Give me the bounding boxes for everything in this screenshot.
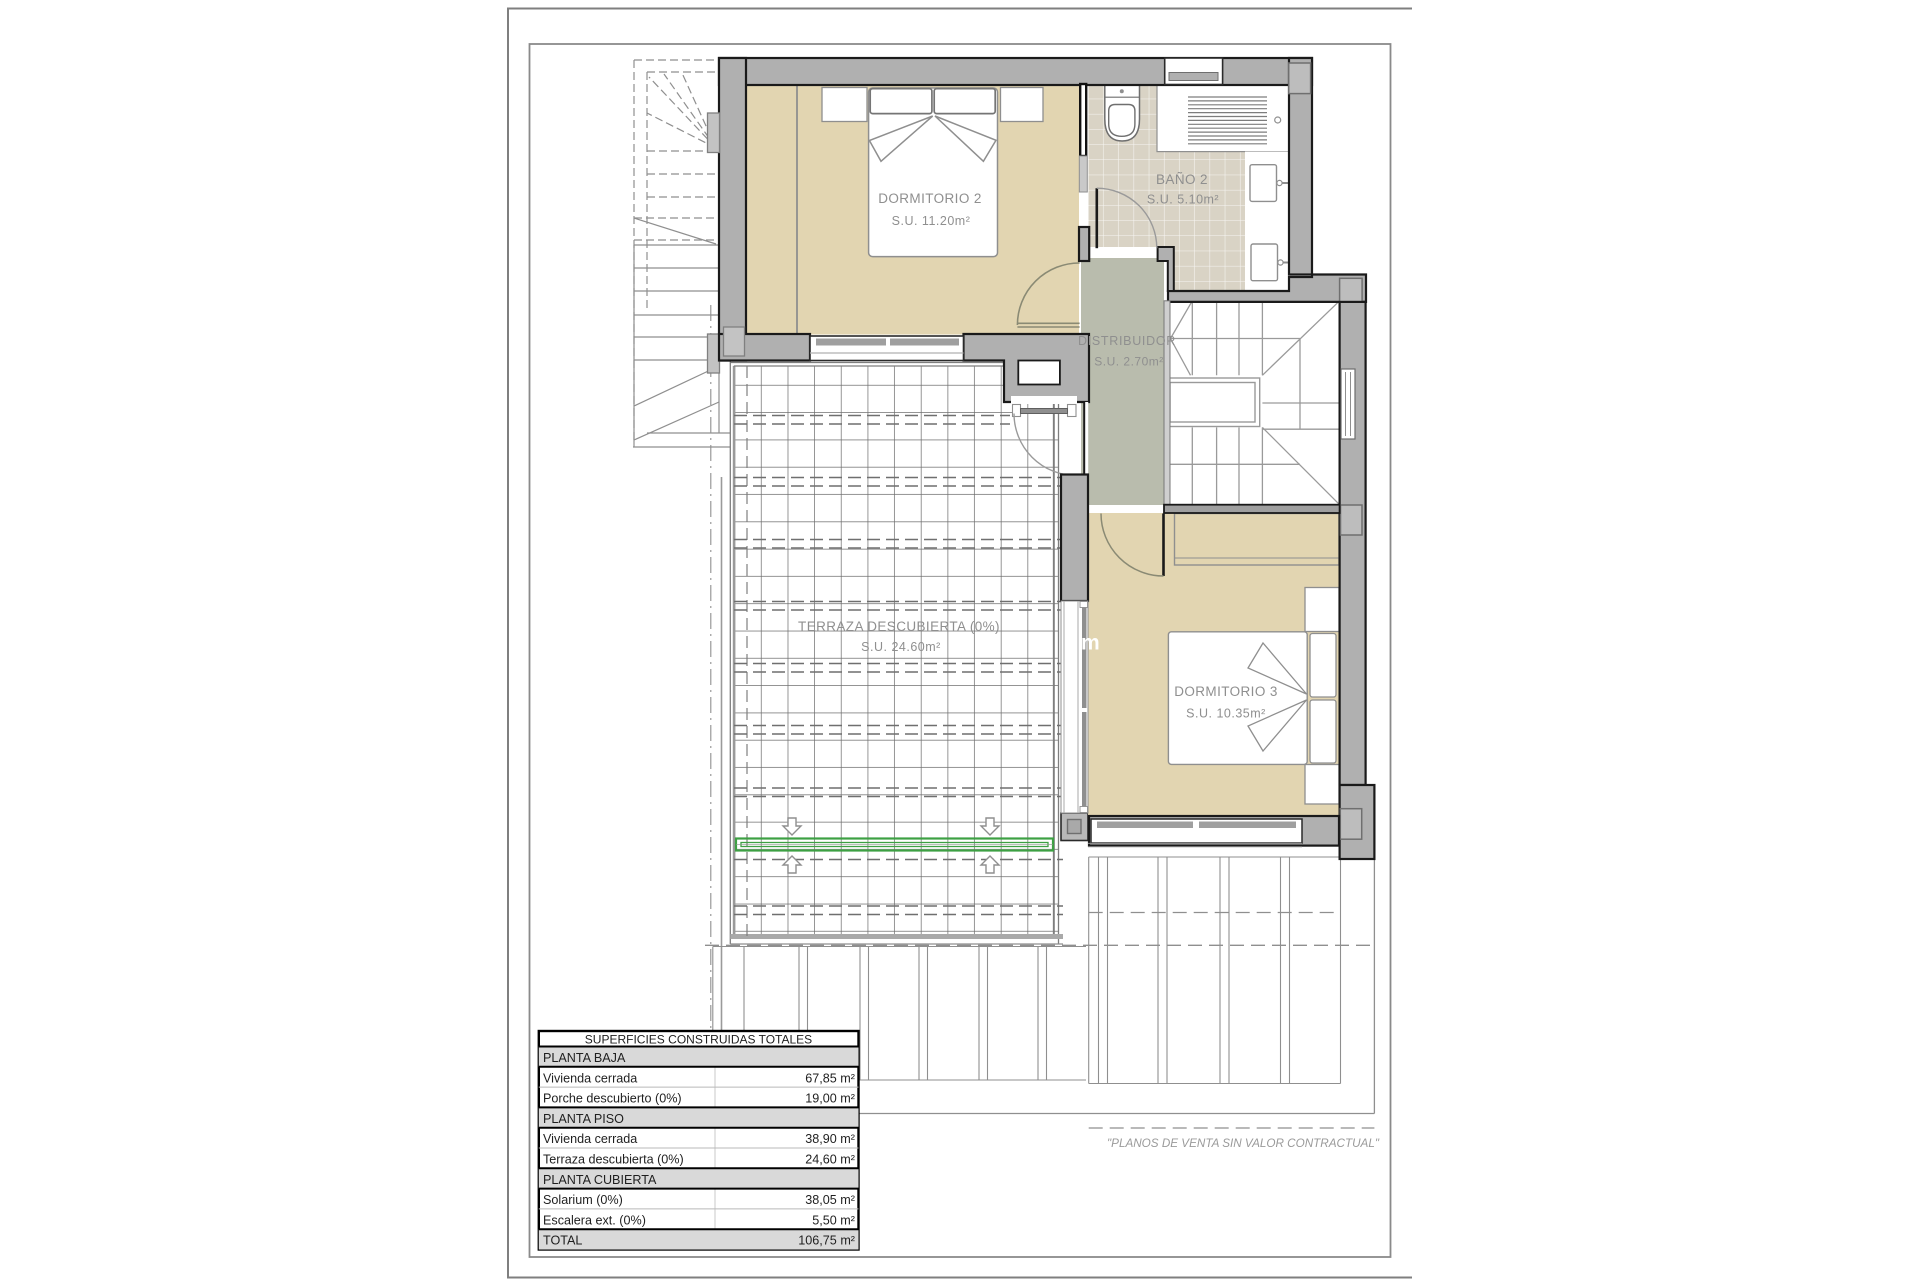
svg-text:5,50 m²: 5,50 m² bbox=[812, 1213, 855, 1227]
svg-text:BAÑO 2: BAÑO 2 bbox=[1156, 172, 1208, 187]
svg-text:S.U. 24.60m²: S.U. 24.60m² bbox=[861, 640, 941, 654]
svg-text:Terraza descubierta (0%): Terraza descubierta (0%) bbox=[543, 1153, 684, 1167]
svg-text:DISTRIBUIDOR: DISTRIBUIDOR bbox=[1078, 334, 1176, 348]
svg-text:38,90 m²: 38,90 m² bbox=[805, 1132, 855, 1146]
svg-text:TERRAZA DESCUBIERTA (0%): TERRAZA DESCUBIERTA (0%) bbox=[798, 619, 1000, 634]
svg-text:Vivienda cerrada: Vivienda cerrada bbox=[543, 1132, 637, 1146]
svg-text:Vivienda cerrada: Vivienda cerrada bbox=[543, 1071, 637, 1085]
svg-text:PLANTA BAJA: PLANTA BAJA bbox=[543, 1051, 626, 1065]
svg-text:S.U. 11.20m²: S.U. 11.20m² bbox=[892, 214, 971, 228]
svg-text:106,75 m²: 106,75 m² bbox=[798, 1234, 855, 1248]
svg-text:Escalera ext. (0%): Escalera ext. (0%) bbox=[543, 1213, 646, 1227]
svg-text:DORMITORIO 2: DORMITORIO 2 bbox=[878, 191, 982, 206]
svg-text:SUPERFICIES CONSTRUIDAS TOTALE: SUPERFICIES CONSTRUIDAS TOTALES bbox=[585, 1033, 812, 1047]
svg-text:TOTAL: TOTAL bbox=[543, 1234, 582, 1248]
svg-text:19,00 m²: 19,00 m² bbox=[805, 1092, 855, 1106]
svg-text:67,85 m²: 67,85 m² bbox=[805, 1071, 855, 1085]
svg-text:"PLANOS DE VENTA SIN VALOR CON: "PLANOS DE VENTA SIN VALOR CONTRACTUAL" bbox=[1107, 1137, 1380, 1150]
svg-text:S.U. 2.70m²: S.U. 2.70m² bbox=[1094, 355, 1164, 369]
svg-text:S.U. 10.35m²: S.U. 10.35m² bbox=[1186, 707, 1266, 721]
svg-text:24,60 m²: 24,60 m² bbox=[805, 1153, 855, 1167]
svg-text:Solarium (0%): Solarium (0%) bbox=[543, 1193, 623, 1207]
svg-text:DORMITORIO 3: DORMITORIO 3 bbox=[1174, 684, 1278, 699]
svg-text:38,05 m²: 38,05 m² bbox=[805, 1193, 855, 1207]
svg-text:PLANTA CUBIERTA: PLANTA CUBIERTA bbox=[543, 1173, 657, 1187]
svg-text:S.U. 5.10m²: S.U. 5.10m² bbox=[1147, 193, 1219, 207]
svg-text:Porche descubierto (0%): Porche descubierto (0%) bbox=[543, 1092, 682, 1106]
svg-text:PLANTA PISO: PLANTA PISO bbox=[543, 1112, 624, 1126]
svg-text:m: m bbox=[1081, 632, 1100, 655]
